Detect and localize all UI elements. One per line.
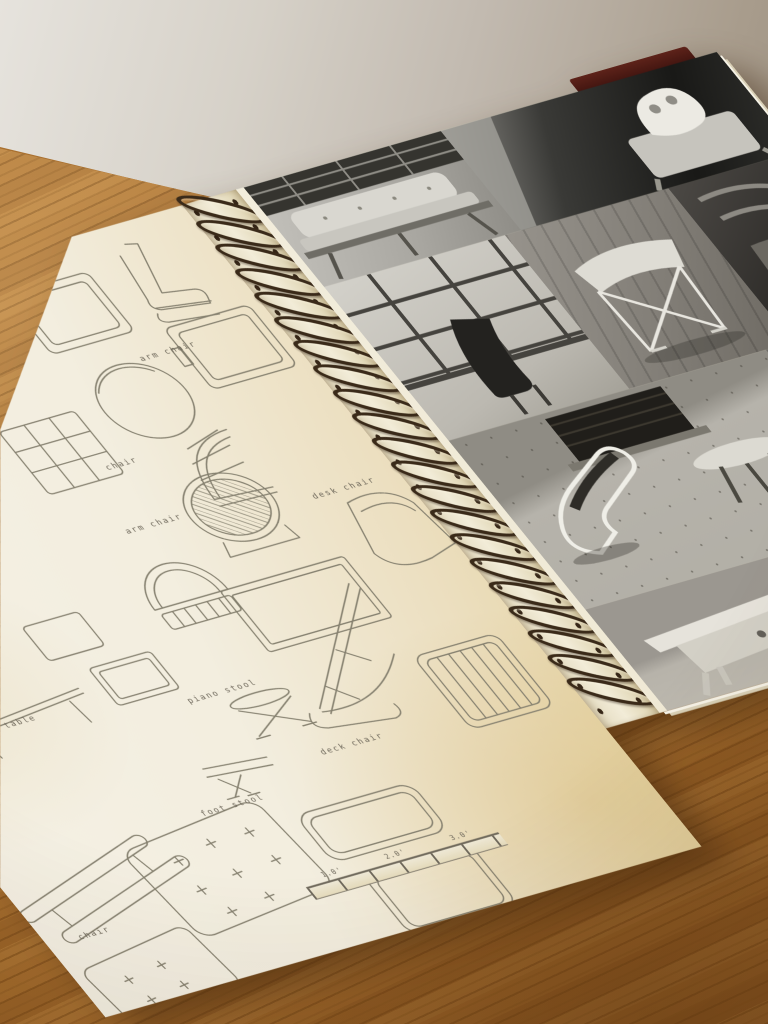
sketch-round-table-top <box>76 354 214 448</box>
sketch-x-base-stool <box>226 684 316 739</box>
sketch-lattice-back-chair <box>165 463 305 559</box>
sketch-tufted-cushion <box>121 799 336 939</box>
sketch-slatted-frame <box>413 633 554 729</box>
sketch-rectangular-table <box>220 556 392 652</box>
sketch-foot-stool <box>201 752 289 802</box>
sketch-dome-chair <box>126 554 244 631</box>
sketch-shelf-unit <box>0 411 124 495</box>
sketch-rounded-frame <box>295 782 449 862</box>
sketch-small-table-panels <box>22 602 180 713</box>
